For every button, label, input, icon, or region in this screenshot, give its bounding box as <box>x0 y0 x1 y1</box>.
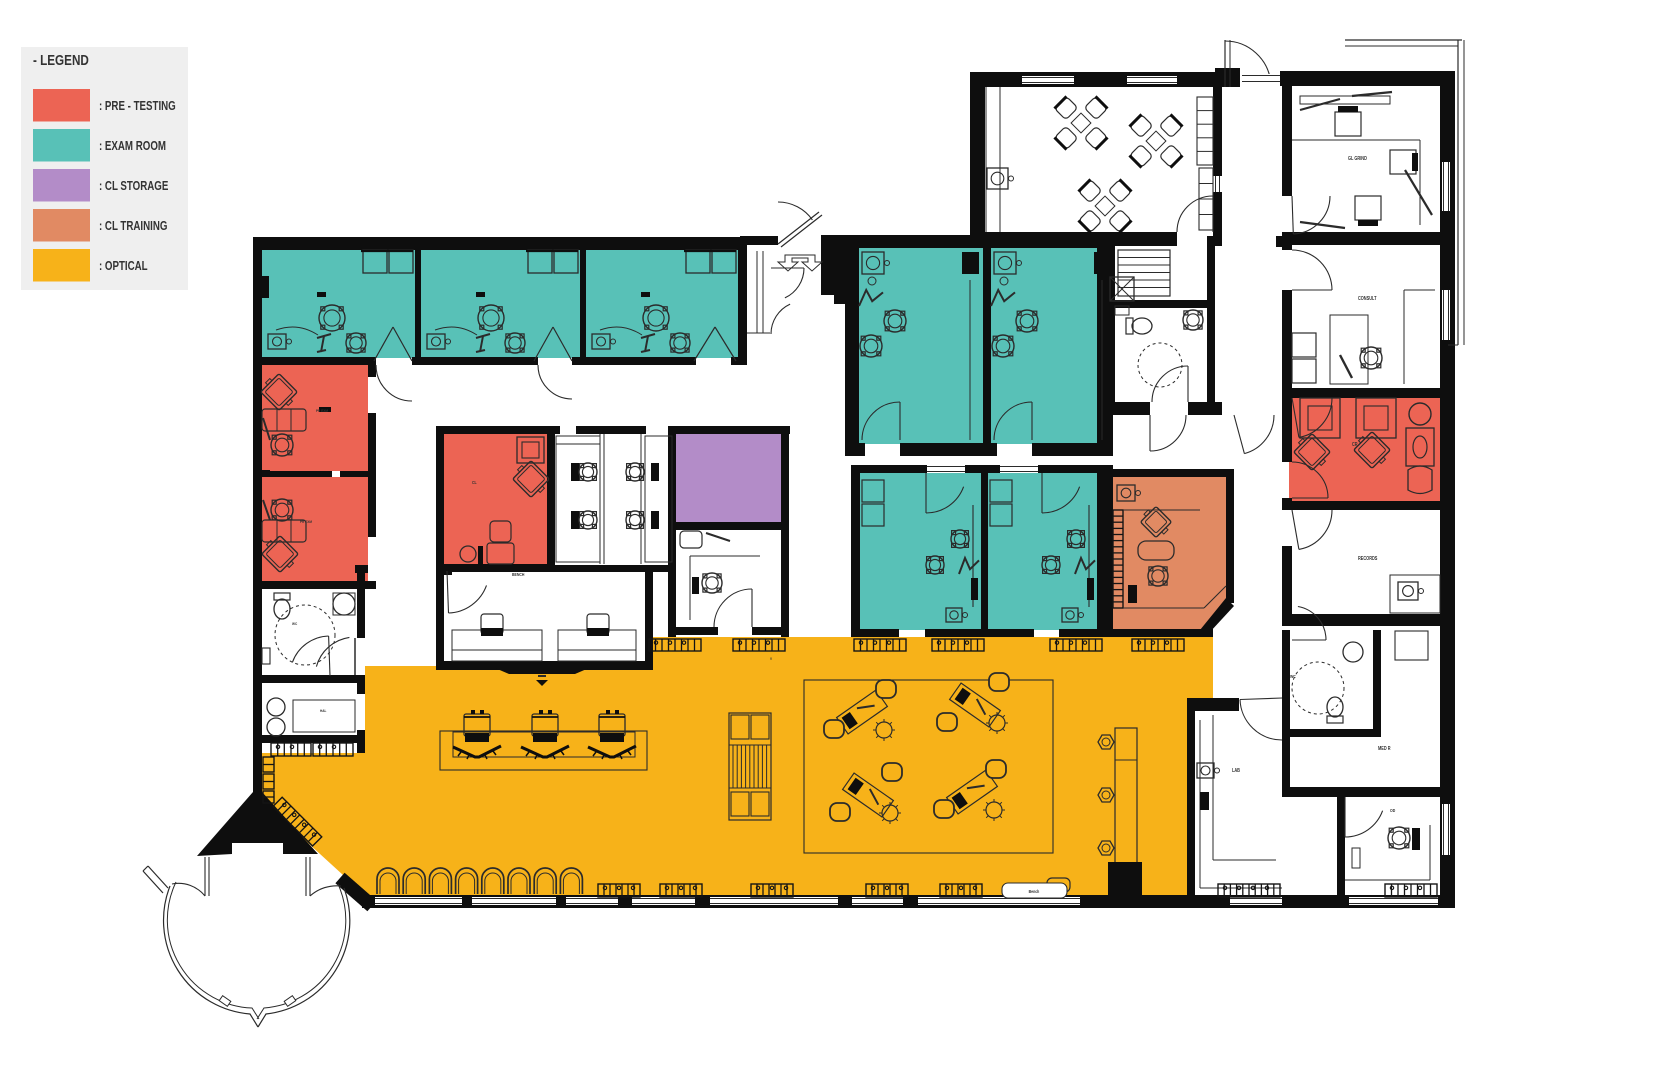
svg-text:- LEGEND: - LEGEND <box>33 52 89 69</box>
svg-text:RECORDS: RECORDS <box>1358 556 1377 562</box>
svg-text:: CL TRAINING: : CL TRAINING <box>99 220 168 233</box>
svg-text:: OPTICAL: : OPTICAL <box>99 260 148 273</box>
svg-text:OD: OD <box>1390 808 1395 814</box>
svg-text:CONSULT: CONSULT <box>1358 296 1377 302</box>
svg-text:CL: CL <box>472 480 477 486</box>
svg-text:WC: WC <box>1290 674 1296 680</box>
svg-text:CR: CR <box>1352 442 1358 448</box>
svg-text:: PRE - TESTING: : PRE - TESTING <box>99 100 176 113</box>
svg-text:: EXAM ROOM: : EXAM ROOM <box>99 140 166 153</box>
svg-text:MED R: MED R <box>1378 746 1391 752</box>
svg-text:BENCH: BENCH <box>512 572 525 578</box>
svg-text:PR EXM: PR EXM <box>316 409 328 413</box>
svg-text:PR EXM: PR EXM <box>300 520 312 524</box>
svg-text:: CL STORAGE: : CL STORAGE <box>99 180 169 193</box>
svg-text:WC: WC <box>292 622 298 626</box>
svg-text:GL GRIND: GL GRIND <box>1348 156 1368 162</box>
svg-text:Bench: Bench <box>1029 889 1040 895</box>
svg-text:LAB: LAB <box>1232 768 1241 774</box>
svg-text:HAL: HAL <box>320 709 327 713</box>
